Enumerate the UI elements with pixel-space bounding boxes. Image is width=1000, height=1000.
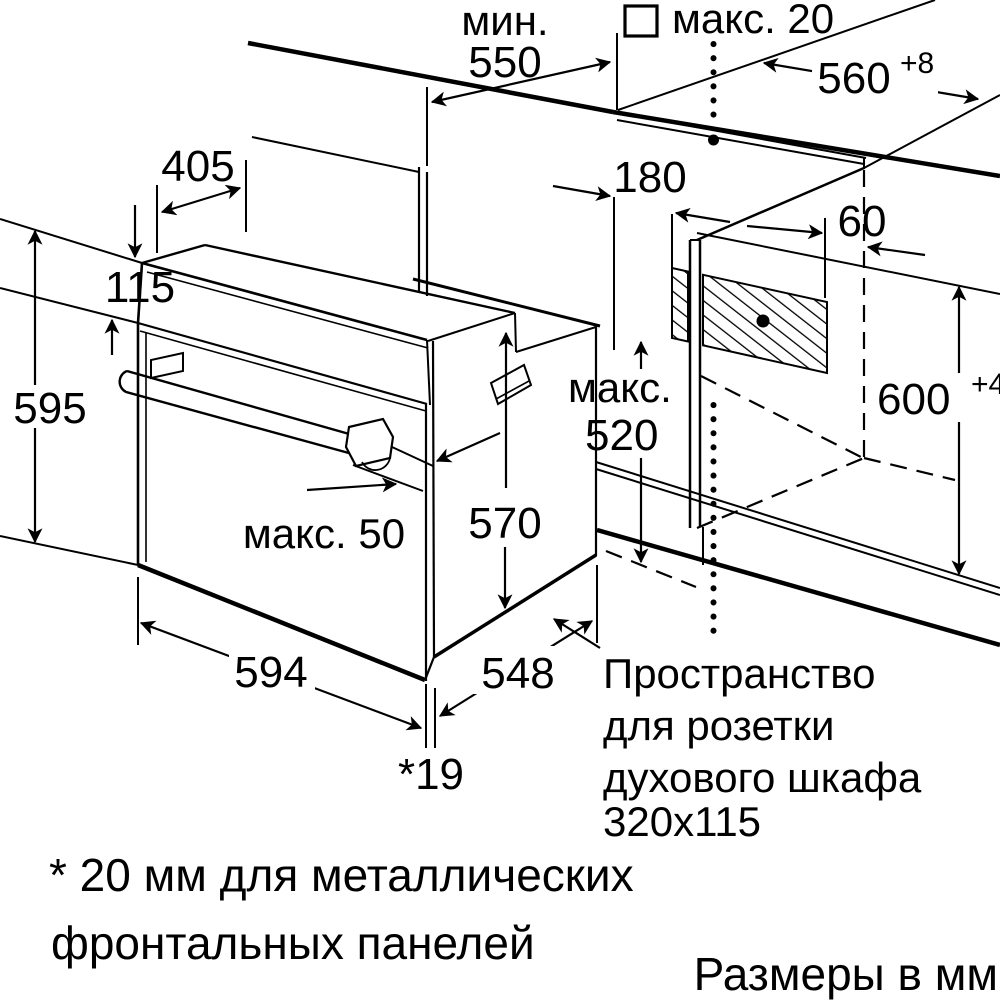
niche-floor-front-edge-b xyxy=(596,469,1000,595)
handle-right-cap xyxy=(346,419,393,466)
label-115: 115 xyxy=(105,263,175,312)
label-max520: 520 xyxy=(585,411,658,460)
label-595: 595 xyxy=(13,384,86,433)
socket-note-leader xyxy=(554,619,600,648)
label-180: 180 xyxy=(613,153,686,202)
label-548: 548 xyxy=(481,649,554,698)
footnote-line2: фронтальных панелей xyxy=(51,917,535,969)
hidden-left-wall-bottom xyxy=(697,458,864,528)
dim-50-arrow-b xyxy=(307,484,396,490)
hob-cutout-front-edge-top xyxy=(613,112,866,158)
label-570: 570 xyxy=(468,499,541,548)
hidden-back-wall-bottom xyxy=(701,376,863,458)
label-600: 600 xyxy=(877,375,950,424)
label-max50: макс. 50 xyxy=(243,510,405,557)
socket-note-line2: для розетки xyxy=(603,702,835,749)
label-60: 60 xyxy=(838,197,887,246)
handle-bar xyxy=(120,371,381,461)
label-min550: 550 xyxy=(468,38,541,87)
handle-left-bracket xyxy=(151,353,183,378)
socket-note-line3: духового шкафа xyxy=(603,754,922,801)
cabinet-top-back-edge xyxy=(864,95,1000,168)
label-405: 405 xyxy=(161,142,234,191)
label-594: 594 xyxy=(234,648,307,697)
dim-60-right-arrow xyxy=(868,247,925,255)
footnote-line1: * 20 мм для металлических xyxy=(49,849,634,901)
side-front-edge xyxy=(433,341,434,657)
top-left-depth-edge xyxy=(142,245,205,263)
niche-top-rail-edge xyxy=(413,279,600,326)
panel-right-edge xyxy=(427,340,430,405)
hatch-left-sliver xyxy=(672,268,688,342)
units-note: Размеры в мм xyxy=(694,948,998,1000)
oven-door-handle xyxy=(120,353,393,470)
dim-405 xyxy=(162,188,240,212)
worktop-underside-edge xyxy=(252,137,419,172)
dim-50-arrow-a xyxy=(437,433,500,461)
oven-installation-diagram: мин. 550 макс. 20 560 +8 405 115 595 180… xyxy=(0,0,1000,1000)
socket-space-hatch xyxy=(672,268,827,373)
socket-note-line4: 320x115 xyxy=(603,798,761,845)
plinth-front-edge xyxy=(597,530,1000,645)
hidden-floor-back-edge xyxy=(864,458,955,480)
label-max520-prefix: макс. xyxy=(568,364,672,411)
socket-note-line1: Пространство xyxy=(603,650,876,697)
label-19: *19 xyxy=(398,750,464,799)
worktop-front-edge-left xyxy=(248,43,613,112)
rear-notch-vertical xyxy=(515,313,516,352)
label-560-tolerance: +8 xyxy=(900,47,934,80)
label-max20: макс. 20 xyxy=(672,0,834,42)
side-bottom-edge xyxy=(434,555,596,657)
label-600-tolerance: +4 xyxy=(971,368,1000,401)
dim-180-right-arrow xyxy=(676,213,730,222)
top-back-edge xyxy=(205,245,515,313)
niche-floor-front-edge-a xyxy=(596,462,1000,588)
left-niche xyxy=(413,167,600,326)
dim-180-left-arrow xyxy=(553,186,610,196)
panel-top-front-edge xyxy=(142,263,427,340)
label-560: 560 xyxy=(817,54,890,103)
technical-drawing-canvas: мин. 550 макс. 20 560 +8 405 115 595 180… xyxy=(0,0,1000,1000)
cable-entry-dot xyxy=(708,135,719,146)
rear-notch-depth-edge xyxy=(516,327,596,352)
ext-oven-top-left xyxy=(0,219,142,263)
hob-square-icon xyxy=(625,6,657,36)
dim-60-left-arrow xyxy=(747,226,822,233)
ext-oven-bottom-left xyxy=(0,536,138,565)
top-right-depth-edge xyxy=(428,313,515,341)
socket-position-dot xyxy=(757,315,770,328)
